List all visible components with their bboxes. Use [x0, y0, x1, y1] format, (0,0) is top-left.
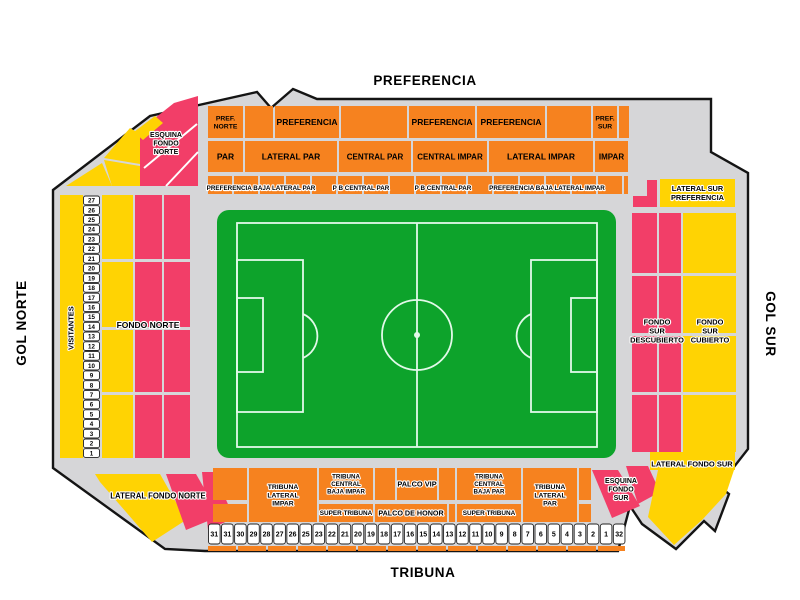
center-spot — [414, 332, 420, 338]
gate-number-left: 14 — [88, 324, 95, 331]
label-lateral-fondo-sur: LATERAL FONDO SUR — [651, 460, 733, 469]
sec-pref-sur-label: PREF.SUR — [595, 115, 614, 130]
gate-number-bottom: 5 — [552, 532, 556, 539]
label-pref-baja-lateral-impar: PREFERENCIA BAJA LATERAL IMPAR — [489, 185, 605, 192]
sec-ba-1[interactable] — [213, 468, 247, 500]
stadium-seating-map: 2726252423222120191817161514131211109876… — [0, 0, 800, 600]
gate-number-bottom: 19 — [367, 532, 375, 539]
gate-number-bottom: 6 — [539, 532, 543, 539]
gate-number-left: 25 — [88, 217, 95, 224]
sec-preferencia-3-label: PREFERENCIA — [481, 117, 542, 127]
title-tribuna: TRIBUNA — [391, 565, 456, 580]
sec-r1-2[interactable] — [245, 106, 273, 138]
strip-tribuna-baja[interactable] — [508, 546, 536, 551]
title-gol-norte: GOL NORTE — [14, 280, 29, 365]
gate-number-left: 2 — [90, 441, 94, 448]
gate-number-left: 8 — [90, 382, 94, 389]
gate-number-left: 6 — [90, 402, 94, 409]
sec-par-label: PAR — [217, 151, 234, 161]
sec-fondo-norte-p6[interactable] — [164, 262, 190, 327]
sec-bb-6[interactable] — [579, 504, 591, 522]
sec-fondo-norte-p3[interactable] — [135, 330, 162, 392]
strip-tribuna-baja[interactable] — [358, 546, 386, 551]
sec-fondo-norte-y1[interactable] — [102, 195, 133, 259]
strip-tribuna-baja[interactable] — [478, 546, 506, 551]
gate-number-left: 1 — [90, 450, 94, 457]
gate-number-bottom: 16 — [406, 532, 414, 539]
gate-number-bottom: 9 — [500, 532, 504, 539]
gate-number-bottom: 25 — [302, 532, 310, 539]
strip-tribuna-baja[interactable] — [328, 546, 356, 551]
sec-r1-4[interactable] — [341, 106, 407, 138]
sec-palco-de-honor-label: PALCO DE HONOR — [378, 509, 444, 518]
gate-number-left: 21 — [88, 256, 95, 263]
gate-number-bottom: 7 — [526, 532, 530, 539]
gate-number-bottom: 23 — [315, 532, 323, 539]
gate-number-bottom: 2 — [591, 532, 595, 539]
label-pb-central-par-2: P B CENTRAL PAR — [415, 185, 472, 192]
strip-tribuna-baja[interactable] — [268, 546, 296, 551]
sec-fondo-norte-p4[interactable] — [135, 395, 162, 458]
gate-number-bottom: 4 — [565, 532, 569, 539]
gate-number-left: 7 — [90, 392, 94, 399]
gate-number-left: 23 — [88, 236, 95, 243]
gate-number-left: 13 — [88, 334, 95, 341]
strip-tribuna-baja[interactable] — [238, 546, 266, 551]
strip-tribuna-baja[interactable] — [568, 546, 596, 551]
title-gol-sur: GOL SUR — [763, 291, 778, 356]
gate-number-left: 15 — [88, 314, 95, 321]
gate-number-bottom: 1 — [604, 532, 608, 539]
sec-pref-norte-label: PREF.NORTE — [214, 115, 238, 130]
sec-fondo-sur-c1[interactable] — [683, 213, 736, 273]
gate-number-bottom: 20 — [354, 532, 362, 539]
sec-preferencia-1-label: PREFERENCIA — [277, 117, 338, 127]
strip-tribuna-baja[interactable] — [298, 546, 326, 551]
label-visitantes: VISITANTES — [67, 306, 76, 350]
sec-central-impar-label: CENTRAL IMPAR — [417, 152, 483, 161]
gate-number-bottom: 11 — [472, 532, 480, 539]
gate-number-bottom: 31 — [223, 532, 231, 539]
sec-fondo-norte-p1[interactable] — [135, 195, 162, 259]
sec-super-tribuna-impar-label: SUPER TRIBUNA — [320, 510, 373, 517]
gate-number-bottom: 12 — [459, 532, 467, 539]
sec-ba-9[interactable] — [579, 468, 591, 500]
sec-ba-6[interactable] — [439, 468, 455, 500]
gate-number-left: 20 — [88, 266, 95, 273]
sec-fondo-norte-y3[interactable] — [102, 330, 133, 392]
strip-tribuna-baja[interactable] — [208, 546, 236, 551]
strip-tribuna-baja[interactable] — [598, 546, 625, 551]
sec-lateral-sur-preferencia-label: LATERAL SURPREFERENCIA — [671, 184, 725, 202]
gate-number-left: 27 — [88, 198, 95, 205]
gate-number-left: 5 — [90, 411, 94, 418]
football-pitch — [217, 210, 616, 458]
gate-number-left: 16 — [88, 305, 95, 312]
sec-bb-1[interactable] — [213, 504, 247, 522]
gate-number-left: 11 — [88, 353, 95, 360]
sec-fondo-sur-p8[interactable] — [659, 395, 681, 452]
strip-tribuna-baja[interactable] — [538, 546, 566, 551]
sec-fondo-norte-p8[interactable] — [164, 395, 190, 458]
gate-number-left: 17 — [88, 295, 95, 302]
gate-number-left: 9 — [90, 373, 94, 380]
gate-number-left: 12 — [88, 343, 95, 350]
sec-tribuna-central-baja-impar-label: TRIBUNACENTRALBAJA IMPAR — [327, 474, 365, 496]
label-pb-central-par-1: P B CENTRAL PAR — [333, 185, 390, 192]
gate-number-bottom: 28 — [263, 532, 271, 539]
gate-number-bottom: 8 — [513, 532, 517, 539]
title-preferencia: PREFERENCIA — [373, 73, 476, 88]
gate-number-bottom: 30 — [237, 532, 245, 539]
gate-number-bottom: 3 — [578, 532, 582, 539]
strip-tribuna-baja[interactable] — [448, 546, 476, 551]
sec-bb-4[interactable] — [449, 504, 455, 522]
strip-preferencia-baja[interactable] — [390, 176, 414, 194]
sec-r1-7[interactable] — [547, 106, 591, 138]
sec-fondo-norte-y4[interactable] — [102, 395, 133, 458]
gate-number-bottom: 26 — [289, 532, 297, 539]
gate-number-bottom: 18 — [380, 532, 388, 539]
strip-tribuna-baja[interactable] — [418, 546, 446, 551]
gate-number-bottom: 14 — [432, 532, 440, 539]
sec-fondo-norte-p2[interactable] — [135, 262, 162, 327]
sec-lateral-par-label: LATERAL PAR — [262, 151, 321, 161]
label-esquina-fondo-norte: ESQUINAFONDONORTE — [150, 132, 182, 156]
label-fondo-norte: FONDO NORTE — [117, 320, 180, 330]
gate-number-bottom: 10 — [485, 532, 493, 539]
gate-number-bottom: 31 — [210, 532, 218, 539]
gate-number-bottom: 17 — [393, 532, 401, 539]
gate-number-left: 3 — [90, 431, 94, 438]
sec-fondo-sur-p4[interactable] — [632, 395, 657, 452]
strip-preferencia-baja[interactable] — [624, 176, 628, 194]
gate-number-left: 24 — [88, 227, 95, 234]
sec-super-tribuna-par-label: SUPER TRIBUNA — [463, 510, 516, 517]
gate-number-left: 19 — [88, 275, 95, 282]
sec-fondo-sur-p1[interactable] — [632, 213, 657, 273]
sec-impar-label: IMPAR — [599, 152, 624, 161]
gate-number-bottom: 21 — [341, 532, 349, 539]
gate-number-left: 22 — [88, 246, 95, 253]
gate-number-bottom: 32 — [615, 532, 623, 539]
gate-number-left: 26 — [88, 207, 95, 214]
sec-r1-9[interactable] — [619, 106, 629, 138]
sec-fondo-norte-p5[interactable] — [164, 195, 190, 259]
strip-tribuna-baja[interactable] — [388, 546, 416, 551]
sec-preferencia-2-label: PREFERENCIA — [412, 117, 473, 127]
gate-number-left: 10 — [88, 363, 95, 370]
sec-palco-vip-label: PALCO VIP — [397, 480, 436, 489]
gate-number-left: 18 — [88, 285, 95, 292]
sec-lateral-impar-label: LATERAL IMPAR — [507, 151, 575, 161]
gate-number-bottom: 15 — [419, 532, 427, 539]
gate-number-bottom: 22 — [328, 532, 336, 539]
label-lateral-fondo-norte: LATERAL FONDO NORTE — [110, 492, 205, 501]
sec-fondo-norte-y2[interactable] — [102, 262, 133, 327]
gate-number-bottom: 13 — [445, 532, 453, 539]
sec-ba-4[interactable] — [375, 468, 395, 500]
gate-number-left: 4 — [90, 421, 94, 428]
sec-central-par-label: CENTRAL PAR — [347, 152, 404, 161]
sec-tribuna-central-baja-par-label: TRIBUNACENTRALBAJA PAR — [474, 474, 505, 496]
sec-fondo-sur-p5[interactable] — [659, 213, 681, 273]
gate-number-bottom: 27 — [276, 532, 284, 539]
sec-fondo-sur-c4[interactable] — [683, 395, 736, 452]
label-pref-baja-lateral-par: PREFERENCIA BAJA LATERAL PAR — [207, 185, 316, 192]
gate-number-bottom: 29 — [250, 532, 258, 539]
sec-fondo-norte-p7[interactable] — [164, 330, 190, 392]
